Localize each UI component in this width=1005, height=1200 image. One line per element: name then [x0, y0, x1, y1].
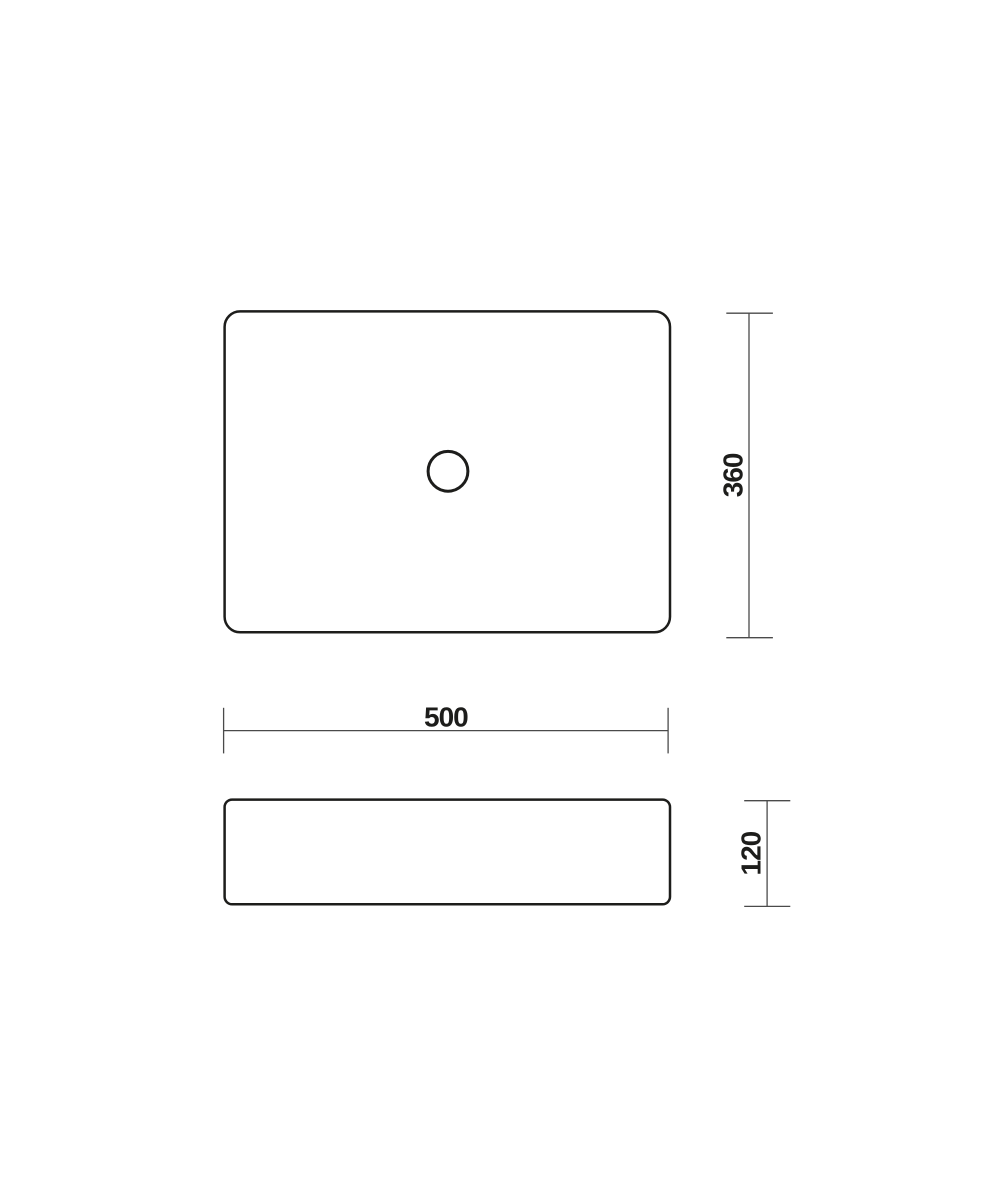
- svg-text:500: 500: [424, 701, 468, 732]
- svg-text:360: 360: [717, 453, 748, 497]
- svg-text:120: 120: [735, 831, 766, 875]
